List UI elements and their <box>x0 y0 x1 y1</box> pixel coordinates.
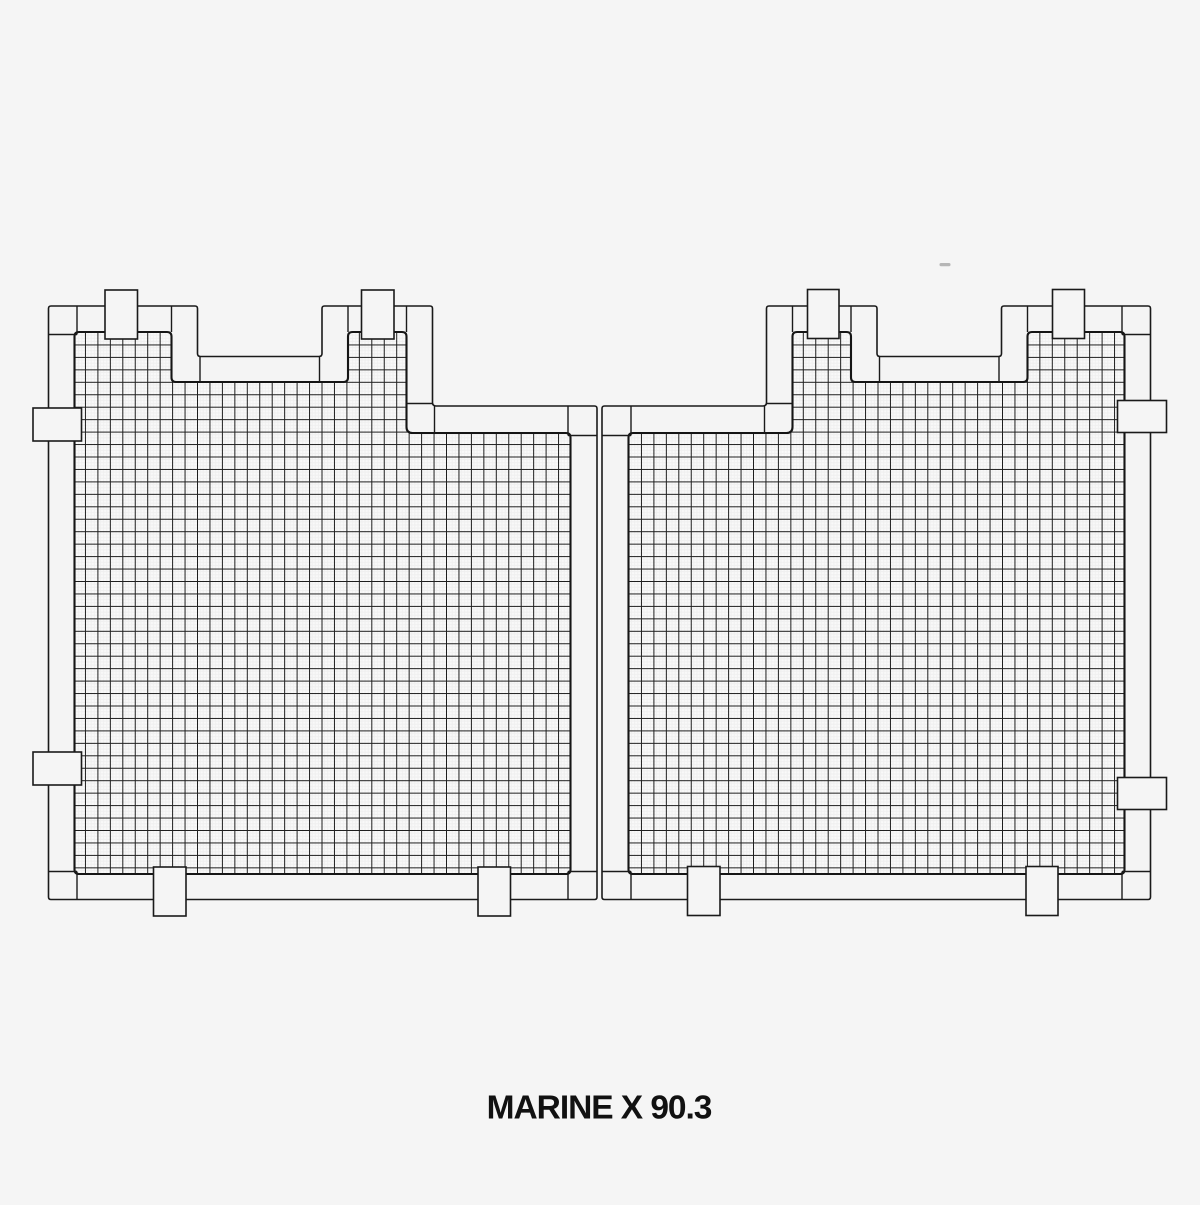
svg-text:MARINE X 90.3: MARINE X 90.3 <box>487 1090 712 1127</box>
